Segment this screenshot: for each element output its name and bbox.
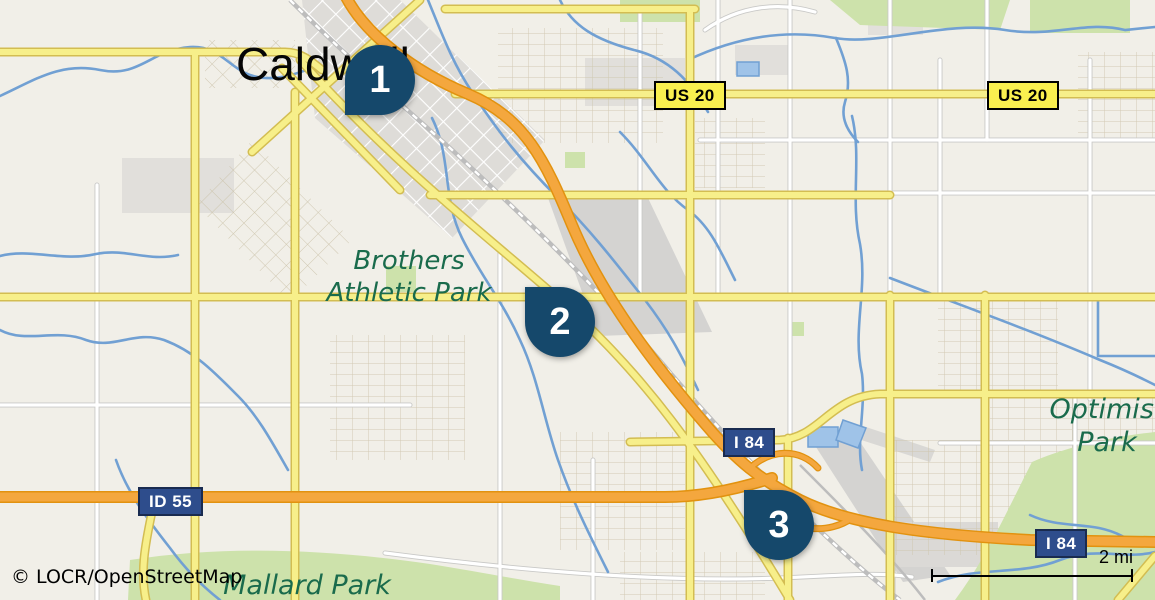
map-attribution: © LOCR/OpenStreetMap — [11, 566, 242, 588]
park-label-mallard: Mallard Park — [223, 570, 391, 600]
map-marker-2[interactable]: 2 — [525, 287, 595, 357]
map-marker-1[interactable]: 1 — [345, 45, 415, 115]
park-label-line: Optimist — [1050, 394, 1155, 427]
park-label-optimist: Optimist Park — [1050, 394, 1155, 460]
park-label-line: Brothers — [326, 246, 491, 278]
road-badge-us20-east: US 20 — [987, 81, 1059, 110]
marker-number: 1 — [369, 59, 390, 102]
road-badge-us20-west: US 20 — [654, 81, 726, 110]
park-label-brothers-athletic: Brothers Athletic Park — [326, 246, 491, 309]
road-badge-id55: ID 55 — [138, 487, 203, 516]
road-badge-i84-west: I 84 — [723, 428, 775, 457]
map-marker-3[interactable]: 3 — [744, 490, 814, 560]
marker-number: 2 — [549, 301, 570, 344]
map-canvas[interactable]: Caldwell Brothers Athletic Park Optimist… — [0, 0, 1155, 600]
scale-bar: 2 mi — [931, 548, 1133, 582]
park-label-line: Athletic Park — [326, 278, 491, 310]
marker-number: 3 — [768, 504, 789, 547]
scale-bar-label: 2 mi — [931, 548, 1133, 568]
park-label-line: Mallard Park — [223, 570, 391, 600]
scale-bar-line — [931, 569, 1133, 582]
park-label-line: Park — [1050, 427, 1155, 460]
